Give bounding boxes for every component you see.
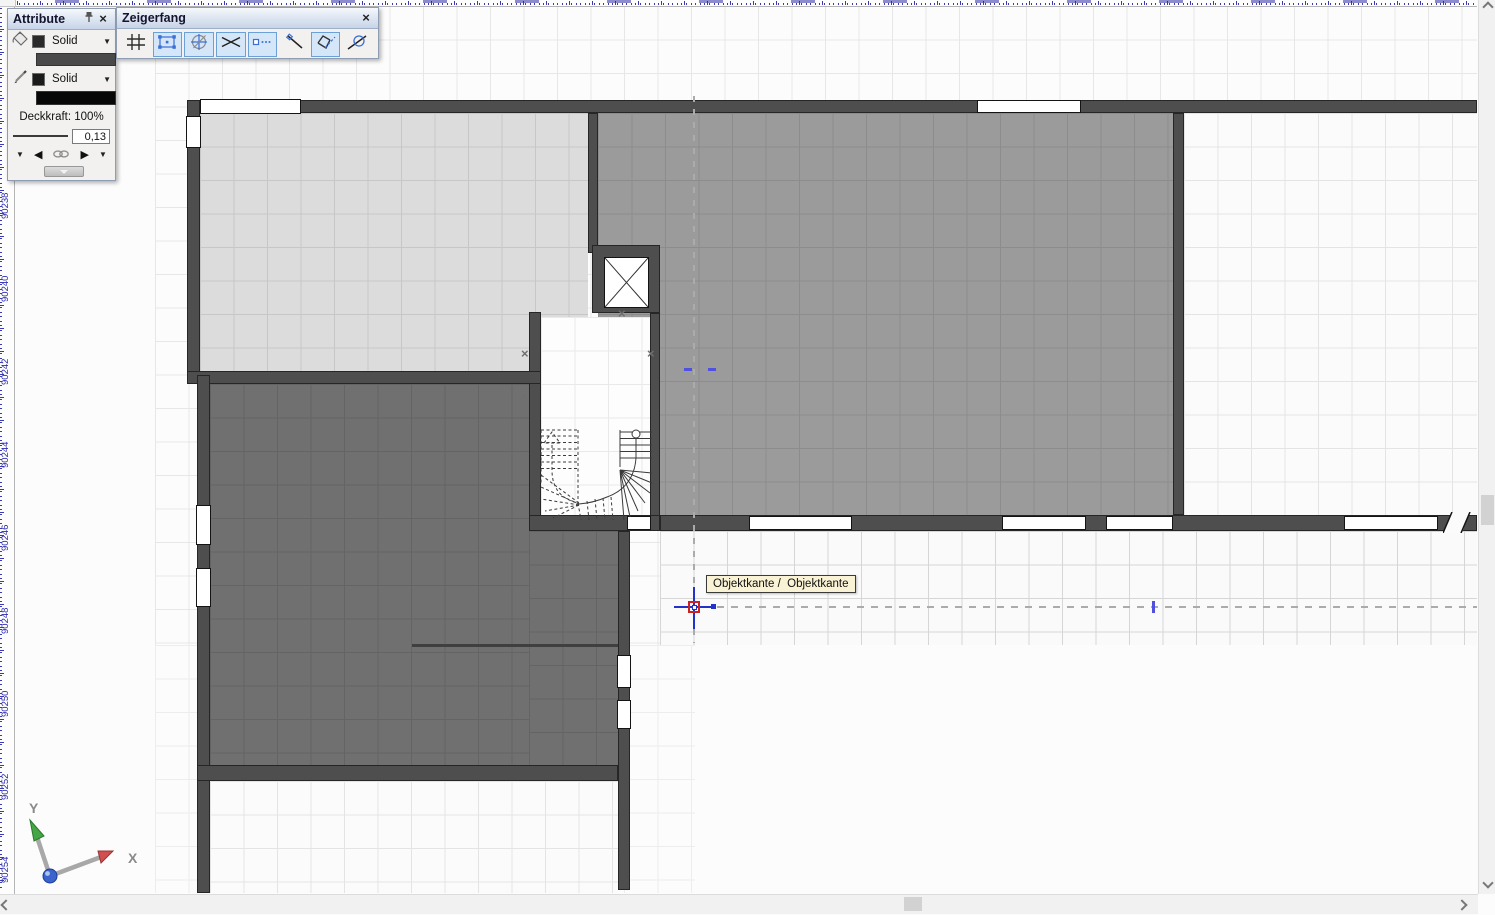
top-ruler: [15, 0, 1477, 7]
wall-break-symbol: [1443, 512, 1475, 533]
guide-tick: [1152, 601, 1155, 613]
wall-left-lower: [197, 375, 210, 893]
surface-color-swatch[interactable]: [32, 35, 45, 48]
pen-width-slider[interactable]: [13, 135, 68, 137]
window-opening: [200, 99, 301, 114]
axis-x-label: X: [128, 850, 137, 866]
snap-button-edge-snap[interactable]: [311, 32, 341, 57]
snap-button-grid-snap[interactable]: [121, 32, 151, 57]
tangent-snap-icon: [345, 32, 369, 57]
close-icon[interactable]: ×: [359, 11, 373, 25]
attribute-panel-title: Attribute: [13, 12, 84, 26]
link-icon[interactable]: [52, 146, 70, 164]
wall-bottom-dark-room: [197, 765, 618, 781]
pen-width-value[interactable]: 0,13: [72, 129, 110, 144]
chevron-down-icon[interactable]: ▼: [103, 75, 111, 84]
horizontal-guide-line: [703, 606, 1477, 608]
pen-color-swatch[interactable]: [32, 73, 45, 86]
snap-x-mark: ×: [521, 392, 529, 401]
partition-line: [412, 644, 618, 647]
window-opening: [1002, 516, 1086, 530]
snap-button-intersection-snap[interactable]: [216, 32, 246, 57]
chevron-down-icon[interactable]: ▼: [99, 150, 107, 159]
ruler-corner: [0, 0, 16, 7]
vertical-scrollbar[interactable]: [1478, 0, 1495, 894]
room-bottom: [210, 781, 618, 893]
snap-button-perpendicular-snap[interactable]: [279, 32, 309, 57]
axis-y-label: Y: [29, 800, 38, 816]
window-opening: [617, 655, 631, 688]
snap-button-element-point-snap[interactable]: [248, 32, 278, 57]
snap-x-mark: ×: [521, 349, 529, 358]
close-icon[interactable]: ×: [96, 12, 110, 26]
surface-color-bar[interactable]: [36, 53, 116, 66]
chevron-down-icon[interactable]: ▼: [16, 150, 24, 159]
pen-style-value[interactable]: Solid: [52, 73, 103, 85]
navigation-row: ▼ ◀ ▶ ▼: [8, 147, 115, 162]
intersection-snap-icon: [219, 32, 243, 57]
elevator-shaft: [604, 257, 649, 308]
guide-handle[interactable]: [708, 368, 716, 371]
room-large-gray: [598, 113, 1173, 515]
application-window: × × × × Objektkante / Objektkante: [0, 0, 1495, 915]
scroll-left-icon[interactable]: [0, 899, 11, 910]
surface-style-value[interactable]: Solid: [52, 35, 103, 47]
room-dark-right-part: [529, 531, 618, 765]
attribute-panel-titlebar[interactable]: Attribute ×: [8, 9, 115, 30]
horizontal-scrollbar[interactable]: [0, 894, 1478, 914]
pen-width-row: 0,13: [8, 128, 115, 144]
zeigerfang-toolbar: Zeigerfang ×: [116, 7, 379, 59]
zeigerfang-titlebar[interactable]: Zeigerfang ×: [117, 8, 378, 29]
window-opening: [186, 116, 201, 148]
room-dark-left: [210, 384, 529, 765]
wall-divider-1: [588, 113, 598, 253]
window-opening: [617, 700, 631, 729]
wall-mid-horizontal: [187, 371, 541, 384]
window-opening: [1344, 516, 1438, 530]
horizontal-scrollbar-thumb[interactable]: [904, 897, 922, 911]
ruler-label: 90250: [0, 691, 11, 717]
snap-buttons-row: [117, 29, 378, 60]
vertex-snap-icon: [155, 32, 179, 57]
collapse-button[interactable]: [44, 166, 84, 177]
snap-tooltip: Objektkante / Objektkante: [706, 575, 856, 593]
pen-style-row: Solid ▼: [8, 71, 115, 87]
prev-icon[interactable]: ◀: [34, 148, 42, 161]
chevron-down-icon[interactable]: ▼: [103, 37, 111, 46]
scroll-right-icon[interactable]: [1456, 899, 1467, 910]
window-opening: [749, 516, 852, 530]
drawing-canvas[interactable]: × × × × Objektkante / Objektkante: [15, 0, 1477, 894]
pin-icon[interactable]: [84, 10, 96, 28]
next-icon[interactable]: ▶: [81, 148, 89, 161]
staircase: [529, 425, 660, 520]
room-top-right: [1184, 113, 1477, 515]
pen-color-bar[interactable]: [36, 91, 116, 105]
element-point-snap-icon: [250, 32, 274, 57]
vertical-scrollbar-thumb[interactable]: [1481, 495, 1494, 525]
surface-style-row: Solid ▼: [8, 33, 115, 49]
window-opening: [196, 505, 211, 545]
wall-divider-2: [1173, 113, 1184, 515]
zeigerfang-title: Zeigerfang: [122, 11, 359, 25]
ruler-label: 90252: [0, 774, 11, 800]
window-opening: [977, 100, 1081, 113]
guide-handle[interactable]: [684, 368, 692, 371]
window-opening: [196, 568, 211, 607]
scroll-down-icon[interactable]: [1482, 877, 1493, 888]
wall-top: [187, 100, 1477, 113]
opacity-label: Deckkraft: 100%: [19, 111, 103, 123]
paint-bucket-icon: [12, 31, 32, 51]
pencil-icon: [12, 69, 32, 89]
opacity-row: Deckkraft: 100%: [8, 110, 115, 124]
window-opening: [1106, 516, 1173, 530]
attribute-panel: Attribute × Solid ▼ Solid ▼: [7, 8, 116, 181]
center-snap-icon: [187, 32, 211, 57]
snap-button-vertex-snap[interactable]: [153, 32, 183, 57]
edge-snap-icon: [314, 32, 338, 57]
snap-x-mark: ×: [618, 309, 626, 318]
snap-button-center-snap[interactable]: [184, 32, 214, 57]
snap-button-tangent-snap[interactable]: [342, 32, 372, 57]
grid-snap-icon: [124, 32, 148, 57]
chevron-down-icon: [60, 170, 68, 174]
perpendicular-snap-icon: [282, 32, 306, 57]
snap-x-mark: ×: [647, 349, 655, 358]
vertical-guide-line: [693, 96, 695, 643]
scroll-up-icon[interactable]: [1482, 1, 1493, 12]
